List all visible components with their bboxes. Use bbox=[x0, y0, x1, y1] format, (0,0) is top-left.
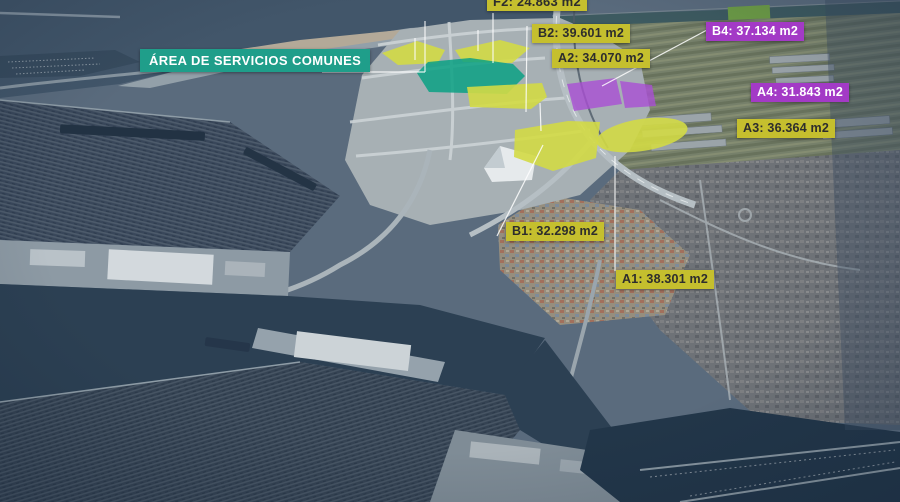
aerial-background bbox=[0, 0, 900, 502]
parcel-label-b1: B1: 32.298 m2 bbox=[506, 222, 604, 241]
zone-label-servicios-comunes: ÁREA DE SERVICIOS COMUNES bbox=[140, 49, 370, 72]
parcel-label-a1: A1: 38.301 m2 bbox=[616, 270, 714, 289]
parcel-label-f2: F2: 24.863 m2 bbox=[487, 0, 587, 11]
parcel-label-b4: B4: 37.134 m2 bbox=[706, 22, 804, 41]
parcel-label-a4: A4: 31.843 m2 bbox=[751, 83, 849, 102]
parcel-polygon-yellow-3 bbox=[467, 83, 547, 109]
aerial-photo-viewport: ÁREA DE SERVICIOS COMUNES F2: 24.863 m2 … bbox=[0, 0, 900, 502]
parcel-polygon-purple-2 bbox=[620, 81, 656, 108]
parcel-label-b2: B2: 39.601 m2 bbox=[532, 24, 630, 43]
parcel-label-a3: A3: 36.364 m2 bbox=[737, 119, 835, 138]
parcel-label-a2: A2: 34.070 m2 bbox=[552, 49, 650, 68]
